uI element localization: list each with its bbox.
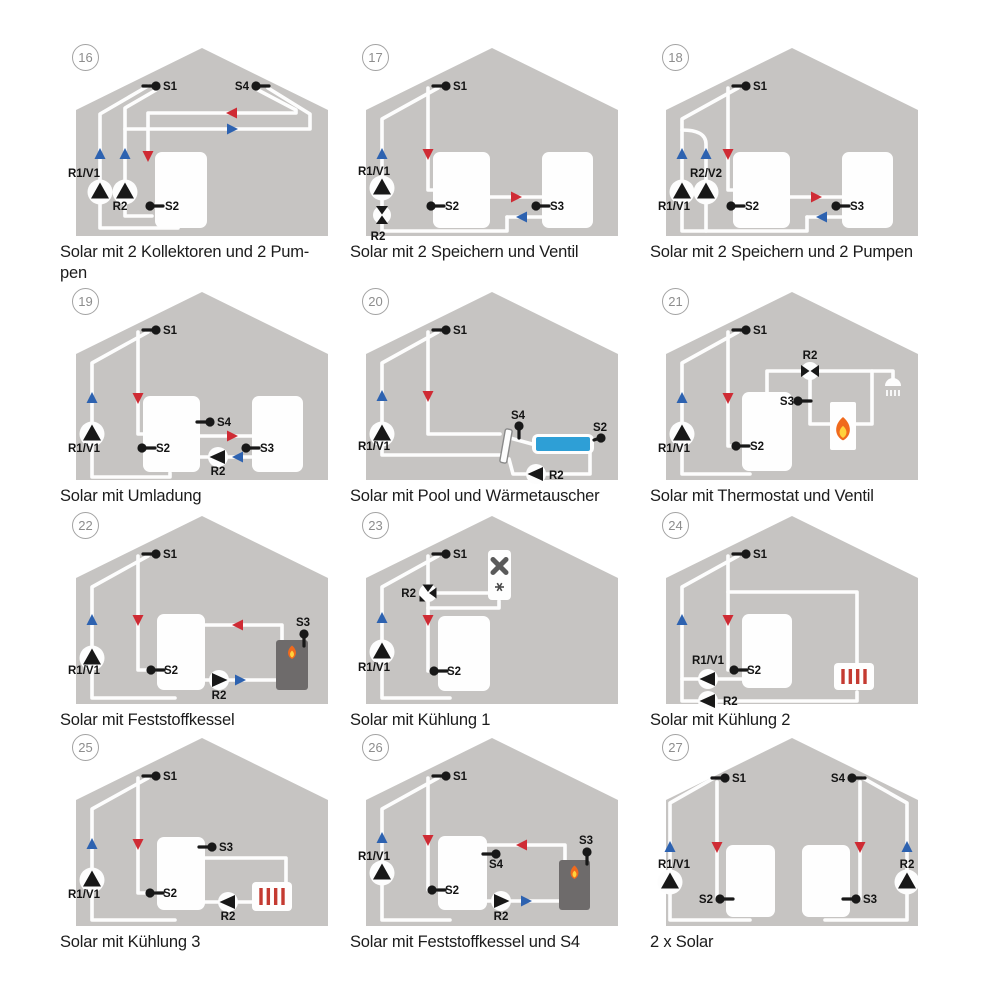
sensor-dot [729,665,738,674]
valve-icon [801,362,819,380]
sensor-label: S2 [699,894,713,906]
schematic-cell-21: 21S1S2S3R1/V1R2Solar mit Thermostat und … [650,284,942,528]
diagram-caption: Solar mit 2 Speichern und Ventil [350,242,642,263]
solar-schematics-page: 16S1S4S2R1/V1R2Solar mit 2 Kollektoren u… [0,0,1000,1000]
diagram-caption: Solar mit 2 Kollektoren und 2 Pum- pen [60,242,352,284]
sensor-label: S1 [753,549,768,561]
diagram-caption: Solar mit Thermostat und Ventil [650,486,942,507]
sensor-label: S3 [780,396,794,408]
solid-fuel-boiler-icon [559,860,590,910]
component-label: R1/V1 [692,655,725,667]
schematic-cell-23: 23S1S2R1/V1R2Solar mit Kühlung 1 [350,508,642,752]
sensor-dot [151,81,160,90]
sensor-label: S2 [447,666,461,678]
diagram-svg: S1S2S3R1/V1R2 [350,40,635,240]
diagram-number-badge: 20 [362,288,389,315]
component-label: R2 [723,696,738,708]
storage-tank [842,152,893,228]
diagram-number-badge: 25 [72,734,99,761]
pump-icon [370,176,395,201]
sensor-label: S2 [747,665,761,677]
sensor-dot [441,325,450,334]
storage-tank [155,152,207,228]
pump-icon [88,180,113,205]
sensor-dot [741,549,750,558]
sensor-label: S2 [745,201,759,213]
schematic-cell-18: 18S1S2S3R2/V2R1/V1Solar mit 2 Speichern … [650,40,942,284]
sensor-label: S3 [550,201,564,213]
sensor-dot [831,201,840,210]
sensor-label: S2 [593,422,607,434]
component-label: R2 [900,859,915,871]
storage-tank [733,152,790,228]
schematic-cell-19: 19S1S2S3S4R1/V1R2Solar mit Umladung [60,284,352,528]
sensor-label: S3 [850,201,864,213]
storage-tank [438,836,487,910]
schematic-cell-26: 26S1S2S4S3R1/V1R2Solar mit Feststoffkess… [350,730,642,974]
component-label: R2 [221,911,236,923]
diagram-caption: Solar mit Kühlung 3 [60,932,352,953]
sensor-dot [151,771,160,780]
sensor-label: S2 [165,201,179,213]
sensor-dot [205,417,214,426]
diagram-number-badge: 16 [72,44,99,71]
component-label: R1/V1 [68,889,101,901]
sensor-dot [207,842,216,851]
three-way-valve-icon [419,584,437,602]
schematic-cell-16: 16S1S4S2R1/V1R2Solar mit 2 Kollektoren u… [60,40,352,284]
schematic-cell-24: 24S1S2R1/V1R2Solar mit Kühlung 2 [650,508,942,752]
sensor-dot [793,396,802,405]
sensor-label: S3 [296,617,310,629]
sensor-dot [427,885,436,894]
diagram-caption: 2 x Solar [650,932,942,953]
diagram-svg: S1S4S2R1/V1R2 [350,284,635,484]
diagram-caption: Solar mit Kühlung 2 [650,710,942,731]
diagram-caption: Solar mit Feststoffkessel [60,710,352,731]
diagram-svg: S1S2S3S4R1/V1R2 [60,284,345,484]
sensor-label: S4 [235,81,250,93]
component-label: R1/V1 [68,665,101,677]
diagram-svg: S1S2S3R2/V2R1/V1 [650,40,935,240]
component-label: R1/V1 [358,166,391,178]
component-label: R1/V1 [358,441,391,453]
sensor-dot [441,549,450,558]
sensor-label: S1 [163,81,178,93]
storage-tank [433,152,490,228]
storage-tank [542,152,593,228]
sensor-dot [731,441,740,450]
sensor-dot [151,549,160,558]
sensor-label: S1 [453,325,468,337]
sensor-dot [441,771,450,780]
sensor-dot [137,443,146,452]
sensor-dot [146,665,155,674]
sensor-dot [145,201,154,210]
component-label: R1/V1 [658,201,691,213]
sensor-label: S1 [163,325,178,337]
sensor-label: S1 [753,325,768,337]
sensor-dot [847,773,856,782]
sensor-dot [726,201,735,210]
component-label: R2 [371,231,386,240]
diagram-svg: S1S2S3R1/V1R2 [60,508,345,708]
sensor-label: S1 [732,773,747,785]
diagram-number-badge: 19 [72,288,99,315]
pump-icon [658,870,683,895]
diagram-svg: S1S2S4S3R1/V1R2 [350,730,635,930]
sensor-label: S1 [163,771,178,783]
sensor-dot [151,325,160,334]
diagram-number-badge: 27 [662,734,689,761]
sensor-dot [741,325,750,334]
storage-tank [143,396,200,472]
sensor-label: S3 [219,842,233,854]
radiator-icon [834,663,874,690]
component-label: R1/V1 [358,662,391,674]
schematic-cell-25: 25S1S2S3R1/V1R2Solar mit Kühlung 3 [60,730,352,974]
sensor-dot [851,894,860,903]
diagram-caption: Solar mit Feststoffkessel und S4 [350,932,642,953]
diagram-number-badge: 26 [362,734,389,761]
component-label: R2 [212,690,227,702]
house-shape [366,516,618,704]
sensor-dot [299,629,308,638]
sensor-dot [514,421,523,430]
component-label: R2 [549,470,564,482]
diagram-number-badge: 22 [72,512,99,539]
component-label: R1/V1 [68,168,101,180]
sensor-dot [715,894,724,903]
sensor-dot [145,888,154,897]
sensor-dot [429,666,438,675]
pump-icon [698,669,718,689]
component-label: R2/V2 [690,168,722,180]
sensor-dot [251,81,260,90]
schematic-cell-17: 17S1S2S3R1/V1R2Solar mit 2 Speichern und… [350,40,642,284]
diagram-caption: Solar mit Pool und Wärmetauscher [350,486,642,507]
pump-icon [370,861,395,886]
sensor-dot [491,849,500,858]
sensor-label: S2 [164,665,178,677]
sensor-label: S1 [753,81,768,93]
pump-icon [526,464,546,484]
diagram-number-badge: 21 [662,288,689,315]
storage-tank [157,614,205,690]
pump-icon [370,640,395,665]
sensor-dot [741,81,750,90]
component-label: R1/V1 [358,851,391,863]
component-label: R2 [211,466,226,478]
sensor-label: S2 [750,441,764,453]
sensor-label: S3 [863,894,877,906]
diagram-number-badge: 18 [662,44,689,71]
sensor-label: S4 [489,859,504,871]
sensor-dot [720,773,729,782]
diagram-number-badge: 17 [362,44,389,71]
diagram-svg: S1S4S2S3R1/V1R2 [650,730,935,930]
sensor-dot [426,201,435,210]
sensor-label: S1 [453,771,468,783]
sensor-dot [441,81,450,90]
sensor-label: S2 [163,888,177,900]
sensor-dot [241,443,250,452]
sensor-dot [531,201,540,210]
sensor-label: S3 [260,443,274,455]
pump-icon [694,180,719,205]
pump-icon [218,892,238,912]
diagram-svg: S1S2R1/V1R2 [350,508,635,708]
component-label: R2 [494,911,509,923]
diagram-svg: S1S4S2R1/V1R2 [60,40,345,240]
diagram-number-badge: 24 [662,512,689,539]
pump-icon [895,870,920,895]
sensor-label: S4 [831,773,846,785]
pool-icon [532,434,594,454]
sensor-label: S1 [163,549,178,561]
schematic-cell-22: 22S1S2S3R1/V1R2Solar mit Feststoffkessel [60,508,352,752]
cooler-fan-icon [488,550,511,600]
schematic-cell-27: 27S1S4S2S3R1/V1R22 x Solar [650,730,942,974]
diagram-caption: Solar mit Umladung [60,486,352,507]
sensor-label: S3 [579,835,593,847]
valve-icon [373,206,391,224]
schematic-cell-20: 20S1S4S2R1/V1R2Solar mit Pool und Wärmet… [350,284,642,528]
component-label: R1/V1 [658,859,691,871]
sensor-label: S4 [511,410,526,422]
sensor-label: S1 [453,549,468,561]
diagram-caption: Solar mit 2 Speichern und 2 Pumpen [650,242,942,263]
diagram-svg: S1S2S3R1/V1R2 [650,284,935,484]
boiler-icon [830,402,856,450]
sensor-label: S1 [453,81,468,93]
component-label: R1/V1 [658,443,691,455]
storage-tank [252,396,303,472]
storage-tank [726,845,775,917]
component-label: R2 [113,201,128,213]
radiator-icon [252,882,292,911]
diagram-caption: Solar mit Kühlung 1 [350,710,642,731]
component-label: R1/V1 [68,443,101,455]
sensor-dot [582,847,591,856]
sensor-s2: S2 [593,422,607,443]
diagram-svg: S1S2R1/V1R2 [650,508,935,708]
pump-icon [208,447,228,467]
solid-fuel-boiler-icon [276,640,308,690]
diagram-number-badge: 23 [362,512,389,539]
component-label: R2 [401,588,416,600]
sensor-dot [596,433,605,442]
sensor-label: S2 [156,443,170,455]
diagram-svg: S1S2S3R1/V1R2 [60,730,345,930]
component-label: R2 [803,350,818,362]
pump-icon [209,670,229,690]
storage-tank [802,845,850,917]
sensor-label: S2 [445,885,459,897]
pump-icon [491,891,511,911]
sensor-label: S4 [217,417,232,429]
storage-tank [438,616,490,691]
sensor-label: S2 [445,201,459,213]
